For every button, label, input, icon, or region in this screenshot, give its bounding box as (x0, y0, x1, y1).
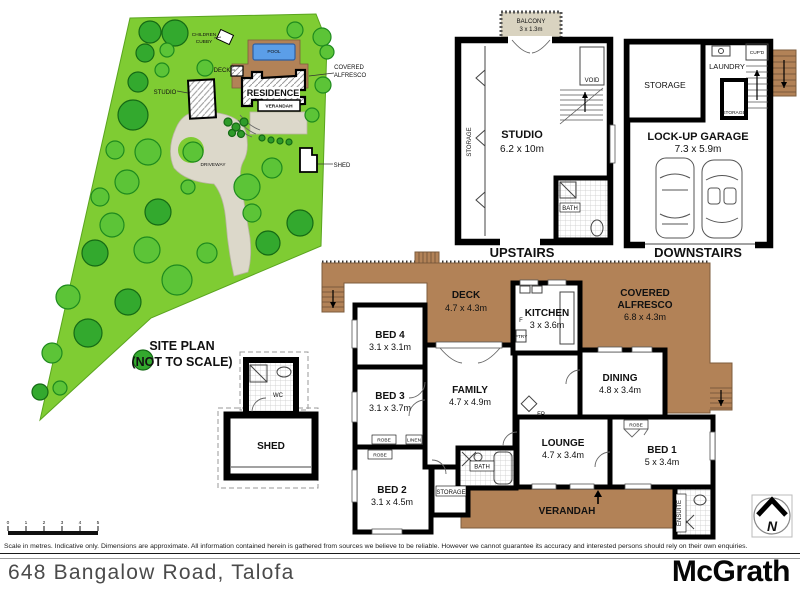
label-fridge: F (519, 318, 523, 324)
label-north: N (767, 518, 778, 534)
label-bed2-dims: 3.1 x 4.5m (371, 497, 413, 507)
label-linen: LINEN (407, 438, 422, 444)
upstairs-right-window (610, 125, 615, 163)
floorplan-canvas: POOL RESIDENCE VERANDAH CHILDREN CUBBY D… (0, 0, 800, 545)
label-downstairs-storage2: STORAGE (722, 110, 745, 116)
family-deck-doors (436, 342, 502, 348)
bed2-window (352, 470, 357, 502)
label-dining-dims: 4.8 x 3.4m (599, 385, 641, 395)
label-family: FAMILY (452, 385, 488, 396)
dining-window1 (598, 347, 622, 352)
label-bed4: BED 4 (375, 330, 405, 341)
label-fp: FP (537, 412, 545, 418)
label-site-shed: SHED (334, 163, 351, 169)
compass: N (752, 495, 792, 537)
label-deck: DECK (452, 290, 481, 301)
scale-2: 2 (43, 520, 46, 526)
label-upstairs-studio-dims: 6.2 x 10m (500, 144, 544, 155)
label-kitchen-dims: 3 x 3.6m (530, 320, 565, 330)
label-site-pool: POOL (267, 49, 281, 55)
label-bed3-dims: 3.1 x 3.7m (369, 403, 411, 413)
label-deck-dims: 4.7 x 4.3m (445, 303, 487, 313)
label-robe-bed3: ROBE (377, 438, 391, 444)
label-children1: CHILDREN (192, 32, 217, 38)
scale-5: 5 (97, 520, 100, 526)
paving (250, 112, 307, 134)
bed2-bottom-window (372, 529, 402, 534)
label-site-driveway: DRIVEWAY (200, 162, 226, 168)
label-alfresco1: COVERED (620, 288, 669, 299)
property-address: 648 Bangalow Road, Talofa (8, 561, 294, 585)
bed1-window (710, 432, 715, 460)
label-upstairs-storage: STORAGE (467, 127, 473, 156)
label-verandah: VERANDAH (539, 506, 596, 517)
label-cupd: CUP'D (750, 50, 765, 56)
label-dining: DINING (603, 373, 638, 384)
label-balcony: BALCONY (517, 19, 546, 25)
label-site-studio: STUDIO (154, 90, 177, 96)
label-bed1-dims: 5 x 3.4m (645, 457, 680, 467)
scale-bar-rect (8, 531, 98, 535)
disclaimer-text: Scale in metres. Indicative only. Dimens… (4, 543, 798, 550)
scale-0: 0 (7, 520, 10, 526)
main-floor-plan: VERANDAH PTRY (322, 252, 732, 537)
label-bed2: BED 2 (377, 485, 407, 496)
scale-bar: 0 1 2 3 4 5 (7, 520, 100, 535)
label-upstairs-bath: BATH (562, 206, 578, 212)
site-plan: POOL RESIDENCE VERANDAH CHILDREN CUBBY D… (32, 14, 367, 420)
label-balcony-dims: 3 x 1.3m (519, 27, 542, 33)
floorplan-page: POOL RESIDENCE VERANDAH CHILDREN CUBBY D… (0, 0, 800, 600)
label-children2: CUBBY (196, 39, 213, 45)
kitchen-window1 (520, 280, 538, 285)
fireplace-icon (521, 396, 537, 412)
label-main-storage: STORAGE (436, 490, 465, 496)
label-wc: WC (273, 393, 284, 399)
scale-4: 4 (79, 520, 82, 526)
bed3-window (352, 392, 357, 422)
lounge-window2 (570, 484, 594, 489)
bed1-bottom-window (625, 484, 651, 489)
scale-1: 1 (25, 520, 28, 526)
site-studio (188, 79, 216, 118)
label-bed1: BED 1 (647, 445, 677, 456)
downstairs-plan: STORAGE LAUNDRY CUP'D STORAGE LOCK-UP GA… (627, 42, 796, 260)
label-kitchen: KITCHEN (525, 308, 569, 319)
label-shed: SHED (257, 441, 285, 452)
dining-window2 (632, 347, 652, 352)
caption-downstairs: DOWNSTAIRS (654, 245, 742, 260)
label-family-dims: 4.7 x 4.9m (449, 397, 491, 407)
scale-ticks (8, 526, 98, 531)
upstairs-plan: BALCONY 3 x 1.3m STORAGE VOID BATH STUDI… (458, 12, 615, 260)
label-alfresco2: ALFRESCO (618, 300, 673, 311)
label-garage-dims: 7.3 x 5.9m (675, 144, 722, 155)
caption-upstairs: UPSTAIRS (490, 245, 555, 260)
label-site-alfresco1: COVERED (334, 65, 364, 71)
label-site-deck: DECK (214, 68, 231, 74)
label-void: VOID (585, 78, 600, 84)
label-bath: BATH (474, 465, 490, 471)
kitchen-window2 (548, 280, 566, 285)
label-lounge: LOUNGE (542, 438, 585, 449)
label-alfresco-dims: 6.8 x 4.3m (624, 312, 666, 322)
label-bed3: BED 3 (375, 391, 405, 402)
label-pantry: PTRY (515, 334, 529, 340)
balcony (501, 12, 561, 40)
label-robe-bed2: ROBE (373, 453, 387, 459)
label-ensuite: ENSUITE (677, 500, 683, 526)
site-plan-subtitle: (NOT TO SCALE) (131, 355, 232, 369)
lounge-window1 (532, 484, 556, 489)
bed4-window (352, 320, 357, 348)
outbuilding-plan: WC SHED (218, 352, 318, 488)
site-deck (231, 66, 243, 76)
label-bed4-dims: 3.1 x 3.1m (369, 342, 411, 352)
label-downstairs-storage: STORAGE (644, 80, 686, 90)
label-laundry: LAUNDRY (709, 62, 745, 71)
agency-logo: McGrath (672, 555, 790, 589)
label-site-residence: RESIDENCE (247, 88, 300, 98)
label-site-alfresco2: ALFRESCO (334, 73, 367, 79)
site-plan-title: SITE PLAN (149, 339, 214, 353)
scale-3: 3 (61, 520, 64, 526)
label-lounge-dims: 4.7 x 3.4m (542, 450, 584, 460)
label-site-verandah: VERANDAH (265, 104, 293, 110)
label-upstairs-studio: STUDIO (501, 129, 543, 141)
label-robe-bed1: ROBE (629, 423, 643, 429)
label-garage: LOCK-UP GARAGE (647, 131, 748, 143)
